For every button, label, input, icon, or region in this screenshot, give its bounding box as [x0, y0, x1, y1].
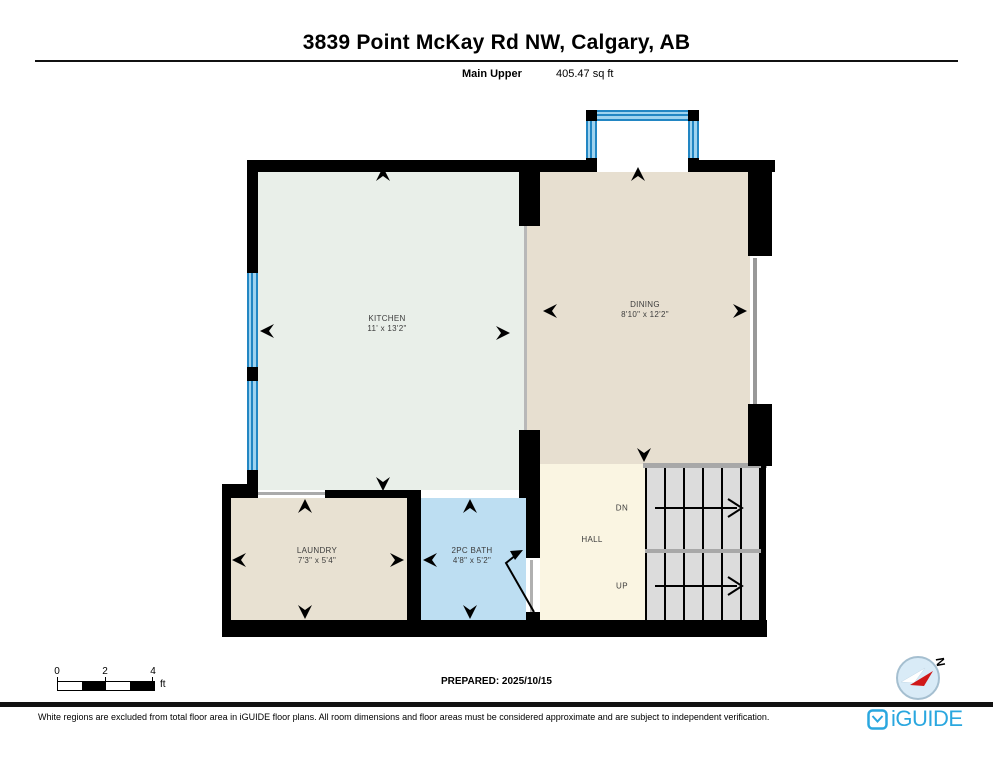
floor-area: 405.47 sq ft	[556, 68, 614, 80]
laundry-left-wall	[222, 484, 231, 620]
bottom-wall	[222, 620, 767, 637]
hall-name: HALL	[581, 535, 602, 545]
disclaimer-text: White regions are excluded from total fl…	[38, 712, 828, 722]
stairs-down	[645, 468, 761, 549]
compass-north-label: N	[933, 657, 948, 668]
dining-right-wall-upper	[748, 160, 772, 256]
kitchen-window-lower	[247, 381, 258, 470]
brand-name: iGUIDE	[891, 706, 963, 732]
stairs-right-wall	[761, 466, 766, 620]
dining-dims: 8'10" x 12'2"	[621, 310, 669, 320]
bay-post-top-left	[586, 110, 597, 121]
kitchen-dims: 11' x 13'2"	[367, 324, 406, 334]
bay-interior	[597, 121, 688, 172]
title-divider	[35, 60, 958, 62]
bay-window-left	[586, 121, 597, 158]
footer-divider	[0, 702, 993, 707]
stairs-down-label: DN	[616, 504, 629, 513]
floor-name: Main Upper	[462, 68, 522, 80]
bay-post-bottom-left	[586, 158, 597, 172]
dining-label: DINING 8'10" x 12'2"	[621, 300, 669, 320]
bath-door-opening-line	[530, 560, 533, 612]
floorplan-page: 3839 Point McKay Rd NW, Calgary, AB Main…	[0, 0, 993, 768]
laundry-bath-wall	[407, 490, 421, 620]
patio-door-line	[753, 258, 757, 404]
kitchen-window-upper	[247, 273, 258, 367]
left-wall-upper	[247, 160, 258, 273]
bath-hall-wall-stub	[526, 612, 540, 620]
bay-post-top-right	[688, 110, 699, 121]
bath-label: 2PC BATH 4'8" x 5'2"	[452, 546, 493, 566]
bay-window-top	[597, 110, 688, 121]
bath-hall-wall	[526, 498, 540, 558]
laundry-dims: 7'3" x 5'4"	[297, 556, 337, 566]
dining-right-wall-lower	[748, 404, 772, 466]
stairs-up	[645, 553, 761, 620]
prepared-date: PREPARED: 2025/10/15	[0, 676, 993, 687]
bath-name: 2PC BATH	[452, 546, 493, 556]
bay-post-bottom-right	[688, 158, 699, 172]
kitchen-name: KITCHEN	[367, 314, 406, 324]
bath-dims: 4'8" x 5'2"	[452, 556, 493, 566]
kitchen-label: KITCHEN 11' x 13'2"	[367, 314, 406, 334]
bay-window-right	[688, 121, 699, 158]
kitchen-dining-stub-top	[519, 160, 540, 226]
hall-label: HALL	[581, 535, 602, 545]
laundry-label: LAUNDRY 7'3" x 5'4"	[297, 546, 337, 566]
laundry-name: LAUNDRY	[297, 546, 337, 556]
kitchen-dining-stub-bottom	[519, 430, 540, 498]
brand-logo: iGUIDE	[867, 706, 963, 732]
stairs-up-label: UP	[616, 582, 628, 591]
top-wall-left	[247, 160, 592, 172]
iguide-logo-icon	[867, 709, 888, 730]
dining-name: DINING	[621, 300, 669, 310]
page-title: 3839 Point McKay Rd NW, Calgary, AB	[0, 31, 993, 55]
left-wall-mid	[247, 367, 258, 381]
